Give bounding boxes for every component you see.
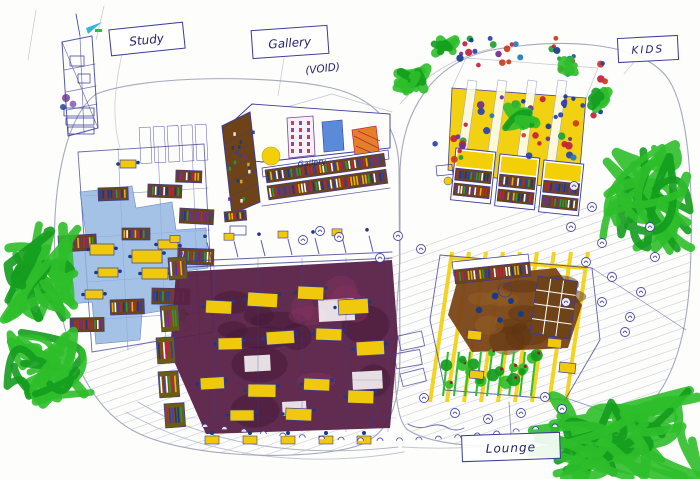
sketch-page: Gallery: [0, 0, 700, 479]
gallery-yellow-sign: [262, 147, 280, 165]
gallery-side-shelf: [224, 210, 247, 235]
tree: [603, 145, 691, 251]
gallery-void-label: (VOID): [305, 61, 341, 77]
tree: [4, 225, 78, 320]
lounge-label: Lounge: [462, 432, 561, 461]
study-label: Study: [109, 22, 185, 56]
svg-text:KIDS: KIDS: [631, 43, 664, 57]
gallery-label: Gallery (VOID): [251, 25, 341, 77]
lounge-grid-shelf: [530, 276, 578, 339]
library-sketch: Gallery: [0, 0, 700, 479]
section-sketch: [28, 6, 104, 136]
tree: [592, 91, 608, 110]
gallery-zone: Gallery: [222, 94, 392, 235]
kids-label: KIDS: [617, 35, 678, 62]
study-glass-panels: [139, 124, 208, 163]
svg-text:Lounge: Lounge: [486, 440, 537, 456]
tree: [434, 39, 455, 53]
tree: [396, 68, 426, 92]
tree: [562, 59, 576, 73]
gallery-banner-blue: [322, 120, 344, 152]
